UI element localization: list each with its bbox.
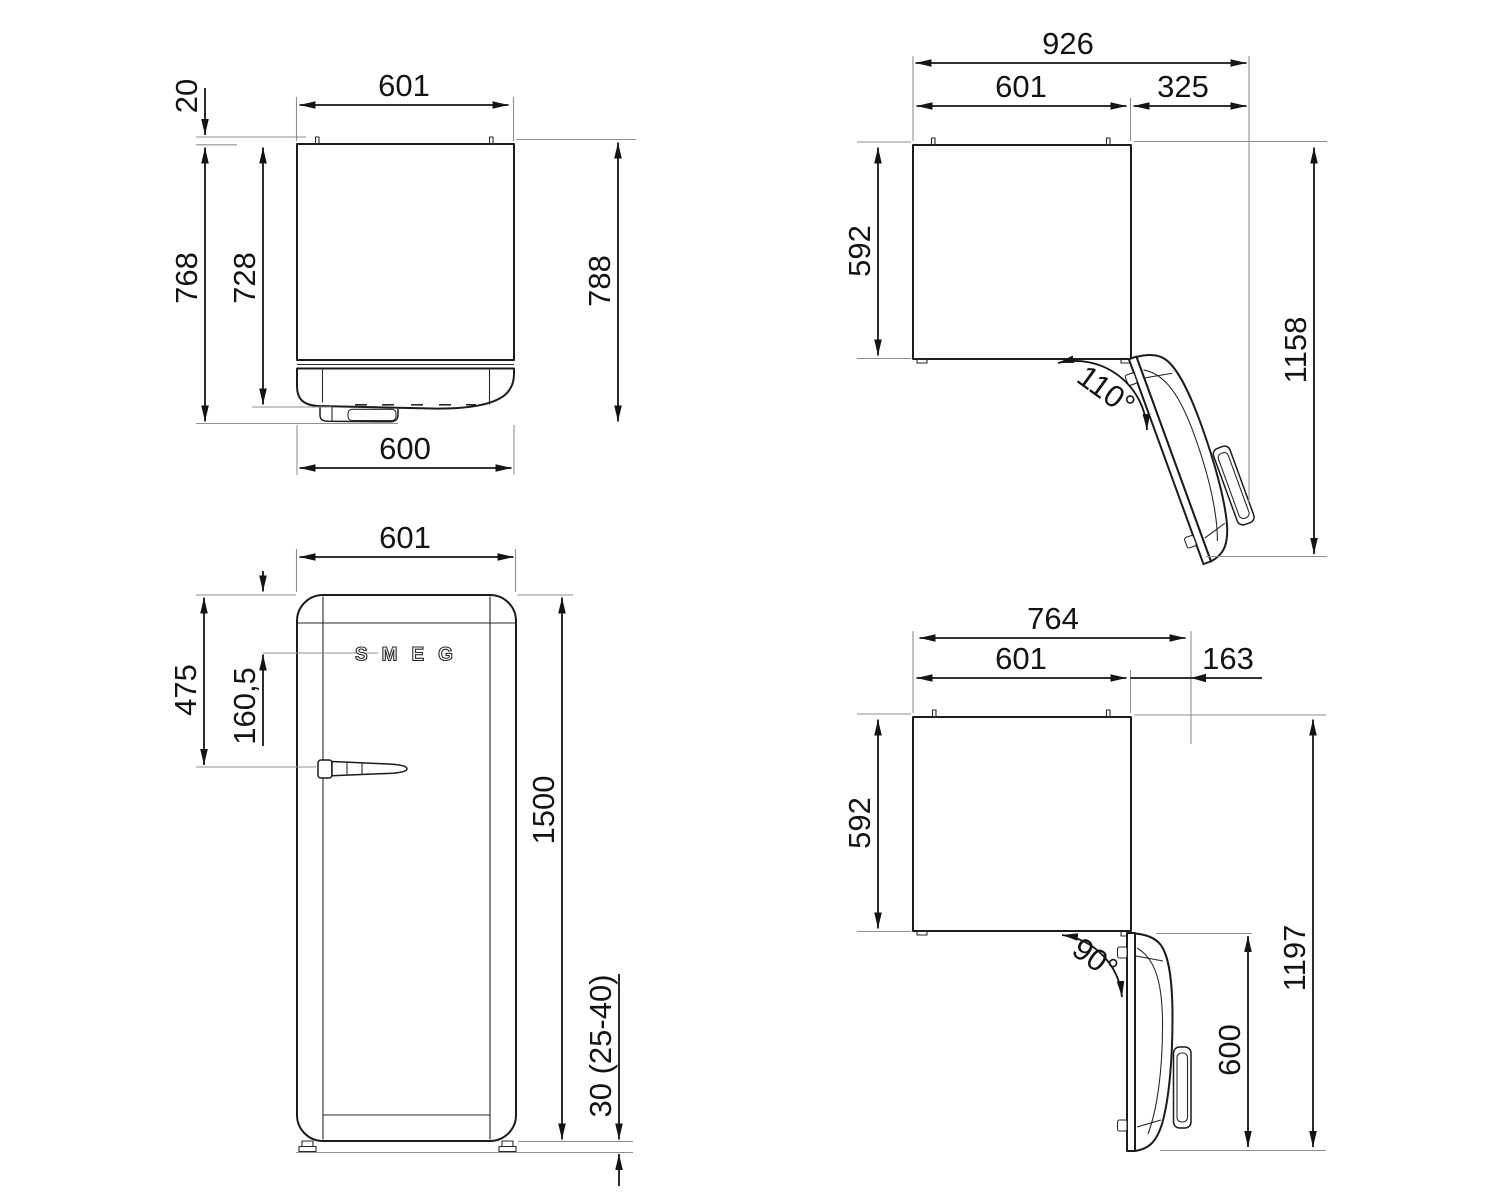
- fridge-dimension-drawing: 601 20 768 728 788 600 90°: [0, 0, 1500, 1200]
- dim-label-overall-depth-open: 1197: [1277, 925, 1312, 992]
- dim-label-depth-no-door: 728: [227, 252, 262, 304]
- extension-lines: [196, 97, 636, 475]
- handle-front-view: [318, 760, 407, 778]
- cabinet-top-outline: [913, 145, 1131, 359]
- door-open-outline: [1120, 337, 1264, 567]
- dim-label-opening-angle: 110°: [1071, 358, 1142, 423]
- dim-label-cabinet-width: 601: [995, 69, 1047, 104]
- dim-label-depth-total: 788: [582, 255, 617, 307]
- dim-label-door-depth-open: 600: [1212, 1024, 1247, 1076]
- cabinet-top-outline: [913, 717, 1131, 931]
- dim-label-opening-angle: 90°: [1066, 931, 1125, 987]
- handle-top-view: [320, 406, 398, 422]
- dim-label-overall-width: 764: [1027, 601, 1079, 636]
- extension-lines: [857, 56, 1327, 557]
- dim-label-feet-height: 30 (25-40): [583, 974, 618, 1117]
- view-top-open-110: 110° 926 601 325 592 1158: [842, 26, 1327, 567]
- hinge-pin-right: [490, 137, 494, 144]
- extension-lines: [196, 549, 633, 1153]
- dim-label-door-clearance: 163: [1202, 641, 1254, 676]
- dim-label-width-top: 601: [378, 68, 430, 103]
- dim-label-cabinet-depth: 592: [842, 225, 877, 277]
- dim-label-depth-with-handle: 768: [169, 252, 204, 304]
- hinge-pin-left: [933, 710, 937, 717]
- view-top-closed: 601 20 768 728 788 600: [169, 68, 636, 475]
- dim-label-logo-from-top: 160,5: [227, 667, 262, 745]
- extension-lines: [857, 631, 1326, 1151]
- dim-label-hinge-offset: 20: [169, 79, 204, 113]
- door-open-outline: [1118, 933, 1192, 1151]
- cabinet-top-outline: [297, 144, 514, 360]
- dim-label-width: 601: [379, 520, 431, 555]
- dim-label-height: 1500: [526, 776, 561, 845]
- cabinet-front-outline: [297, 595, 516, 1141]
- hinge-pin-right: [1107, 138, 1111, 145]
- dim-label-width-bottom: 600: [379, 431, 431, 466]
- dim-label-cabinet-width: 601: [995, 641, 1047, 676]
- hinge-pin-left: [316, 137, 320, 144]
- view-front: SMEG 601 475 160,5 1500: [168, 520, 633, 1186]
- dim-label-overall-depth-open: 1158: [1278, 317, 1313, 384]
- dim-label-handle-from-top: 475: [168, 664, 203, 716]
- door-top-outline: [297, 369, 514, 409]
- hinge-pin-left: [932, 138, 936, 145]
- dim-label-door-clearance: 325: [1157, 69, 1209, 104]
- door-handle: [1174, 1047, 1192, 1128]
- view-top-open-90: 90° 764 601 163 592 1197 600: [842, 601, 1326, 1151]
- hinge-pin-right: [1107, 710, 1111, 717]
- brand-logo: SMEG: [355, 645, 467, 666]
- adjustable-feet: [299, 1141, 516, 1152]
- dim-label-cabinet-depth: 592: [842, 797, 877, 849]
- dim-label-overall-width: 926: [1042, 26, 1094, 61]
- technical-drawing-page: 601 20 768 728 788 600 90°: [0, 0, 1500, 1200]
